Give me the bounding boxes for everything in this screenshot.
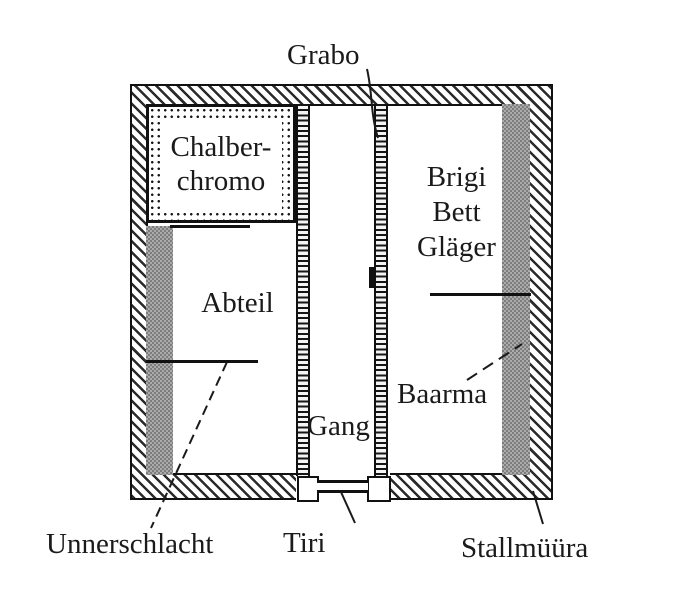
manger-strip-left (146, 226, 173, 475)
figure-canvas: Chalber- chromo Grabo Brigi Bett Gläger … (0, 0, 680, 600)
tiri-door-leaf (317, 480, 368, 493)
grabo-strip (374, 104, 388, 476)
label-grabo: Grabo (287, 38, 359, 72)
label-gang: Gang (307, 409, 370, 443)
label-brigi-line1: Brigi (394, 160, 519, 195)
right-stall-partition (430, 293, 531, 296)
chalberchromo-pen: Chalber- chromo (146, 104, 296, 223)
chalberchromo-label: Chalber- chromo (160, 118, 282, 209)
abteil-partition-lower (146, 360, 258, 363)
door-post-right (367, 476, 391, 502)
abteil-partition-upper (170, 225, 250, 228)
label-brigi-line3: Gläger (394, 230, 519, 265)
label-baarma: Baarma (397, 377, 487, 411)
label-abteil: Abteil (175, 286, 300, 320)
label-stallmuura: Stallmüüra (461, 531, 588, 565)
label-brigi-bett-glaeger: Brigi Bett Gläger (394, 160, 519, 265)
label-brigi-line2: Bett (394, 195, 519, 230)
label-unnerschlacht: Unnerschlacht (46, 527, 214, 561)
label-tiri: Tiri (283, 526, 325, 560)
door-post-left (297, 476, 319, 502)
chalberchromo-label-line2: chromo (177, 164, 266, 198)
grabo-strip-tick (369, 267, 376, 288)
chalberchromo-label-line1: Chalber- (171, 130, 272, 164)
